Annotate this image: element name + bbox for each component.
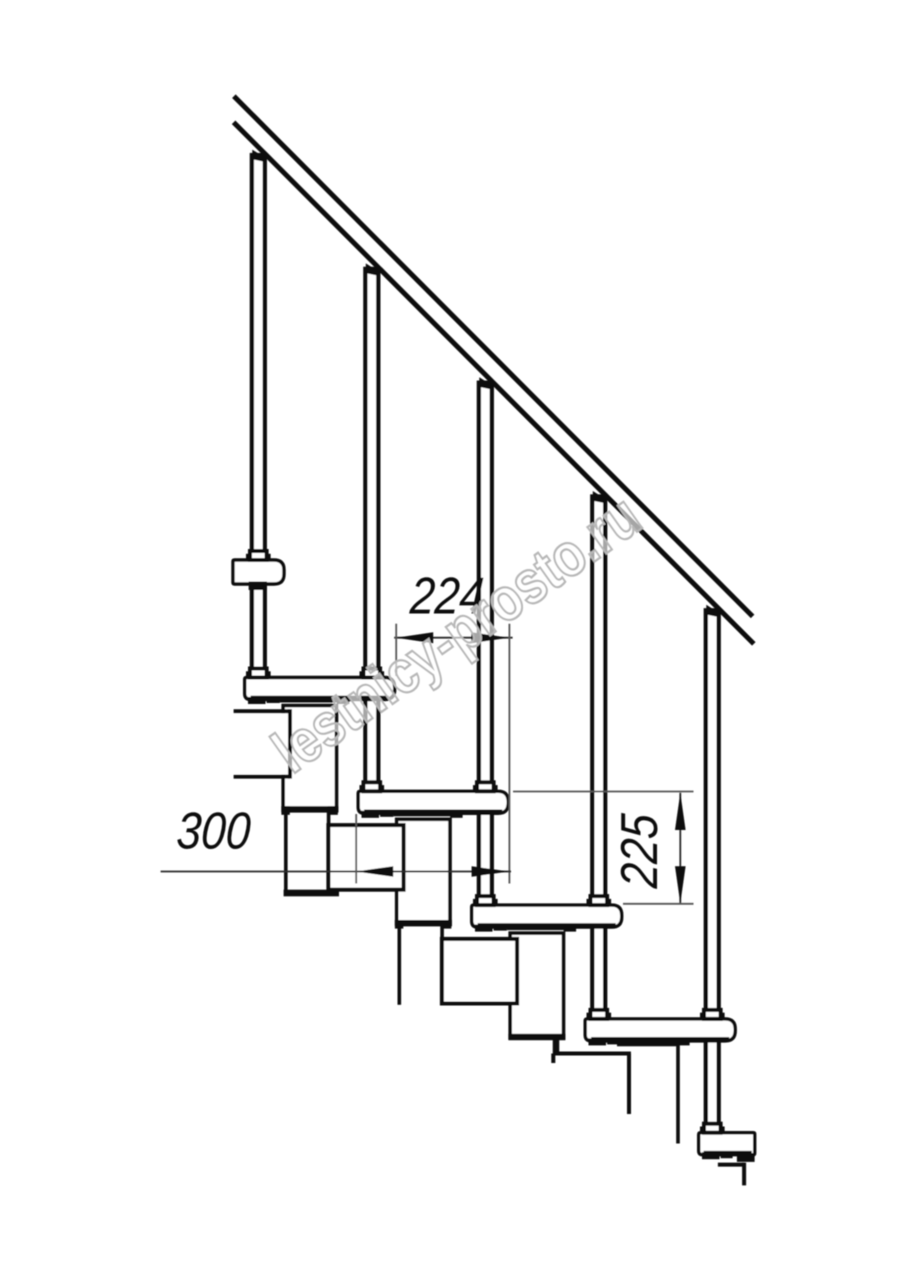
svg-text:300: 300 xyxy=(175,802,252,860)
svg-text:225: 225 xyxy=(611,812,669,890)
